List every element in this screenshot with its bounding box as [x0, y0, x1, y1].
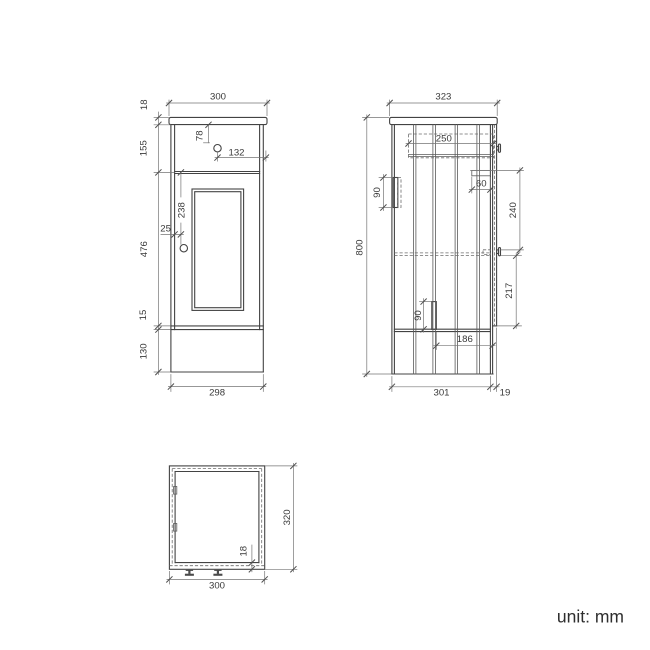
- side-plank-lines: [409, 125, 494, 374]
- side-hinge-plate: [472, 170, 491, 175]
- unit-note: unit: mm: [557, 607, 624, 627]
- technical-drawing-canvas: 300 18 155 78 132 238 25 476 15 130 298: [0, 0, 650, 650]
- side-lower-hinge-hidden: [483, 250, 490, 255]
- front-door-panel-inner: [195, 192, 241, 308]
- front-door-panel-outer: [192, 189, 244, 310]
- side-drawer-knob: [499, 144, 501, 152]
- side-knobs: [497, 144, 501, 256]
- front-view-drawing: 300 18 155 78 132 238 25 476 15 130 298: [138, 92, 270, 399]
- dim-side-wall-bracket-height: 90: [372, 187, 383, 198]
- dim-front-drawer-front-height: 155: [139, 140, 150, 156]
- foot-right-base: [213, 574, 222, 576]
- foot-left-stem: [188, 570, 190, 574]
- cabinet-dimension-drawing: 300 18 155 78 132 238 25 476 15 130 298: [0, 0, 650, 650]
- bottom-carcass-outline: [169, 466, 264, 569]
- dim-front-plinth-height: 130: [139, 343, 150, 359]
- foot-left-base: [185, 574, 194, 576]
- front-drawer-knob: [214, 145, 221, 152]
- bottom-view-drawing: 320 18 300: [166, 463, 297, 592]
- dim-bottom-overall-width: 300: [209, 581, 225, 592]
- foot-right-stem: [217, 570, 219, 574]
- front-dimension-ticks: [155, 100, 270, 390]
- side-door-knob: [499, 248, 501, 256]
- dim-bottom-panel-thickness: 18: [238, 546, 249, 557]
- dim-side-hinge-depth: 60: [476, 178, 487, 189]
- dim-side-body-depth: 301: [433, 387, 449, 398]
- dim-side-countertop-depth: 323: [435, 92, 451, 103]
- dim-side-hinge-to-knob: 240: [508, 202, 519, 218]
- dim-side-drawer-depth: 250: [436, 134, 452, 145]
- dim-front-door-height: 476: [139, 241, 150, 257]
- dim-front-drawer-knob-from-top: 78: [195, 130, 206, 141]
- dim-side-door-projection: 19: [500, 387, 511, 398]
- dim-side-overall-height: 800: [354, 240, 365, 256]
- dim-side-support-bracket-height: 90: [413, 310, 424, 321]
- front-object-lines: [169, 117, 267, 372]
- front-dimension-labels: 300 18 155 78 132 238 25 476 15 130 298: [138, 92, 244, 399]
- dim-front-base-width: 298: [209, 387, 225, 398]
- front-countertop: [169, 117, 267, 124]
- side-object-lines: [390, 117, 498, 374]
- dim-front-door-knob-from-top: 238: [177, 202, 188, 218]
- dim-front-overall-width: 300: [210, 92, 226, 103]
- front-door-knob: [180, 245, 187, 252]
- dim-side-knob-to-door-bottom: 217: [504, 283, 515, 299]
- bottom-object-lines: [169, 466, 264, 569]
- bottom-dimension-ticks: [166, 463, 296, 583]
- dim-front-drawer-knob-from-right: 132: [228, 148, 244, 159]
- side-view-drawing: 323 250 90 60 240 800 217 90 186 301 19: [354, 92, 523, 399]
- dim-bottom-overall-depth: 320: [282, 509, 293, 525]
- side-countertop: [390, 117, 498, 124]
- bottom-hidden-lines: [169, 469, 264, 566]
- dim-side-support-to-front: 186: [457, 334, 473, 345]
- dim-front-bottom-rail-height: 15: [138, 310, 149, 321]
- bottom-feet: [185, 570, 223, 576]
- dim-front-door-knob-from-edge: 25: [160, 224, 171, 235]
- dim-front-countertop-thickness: 18: [139, 99, 150, 110]
